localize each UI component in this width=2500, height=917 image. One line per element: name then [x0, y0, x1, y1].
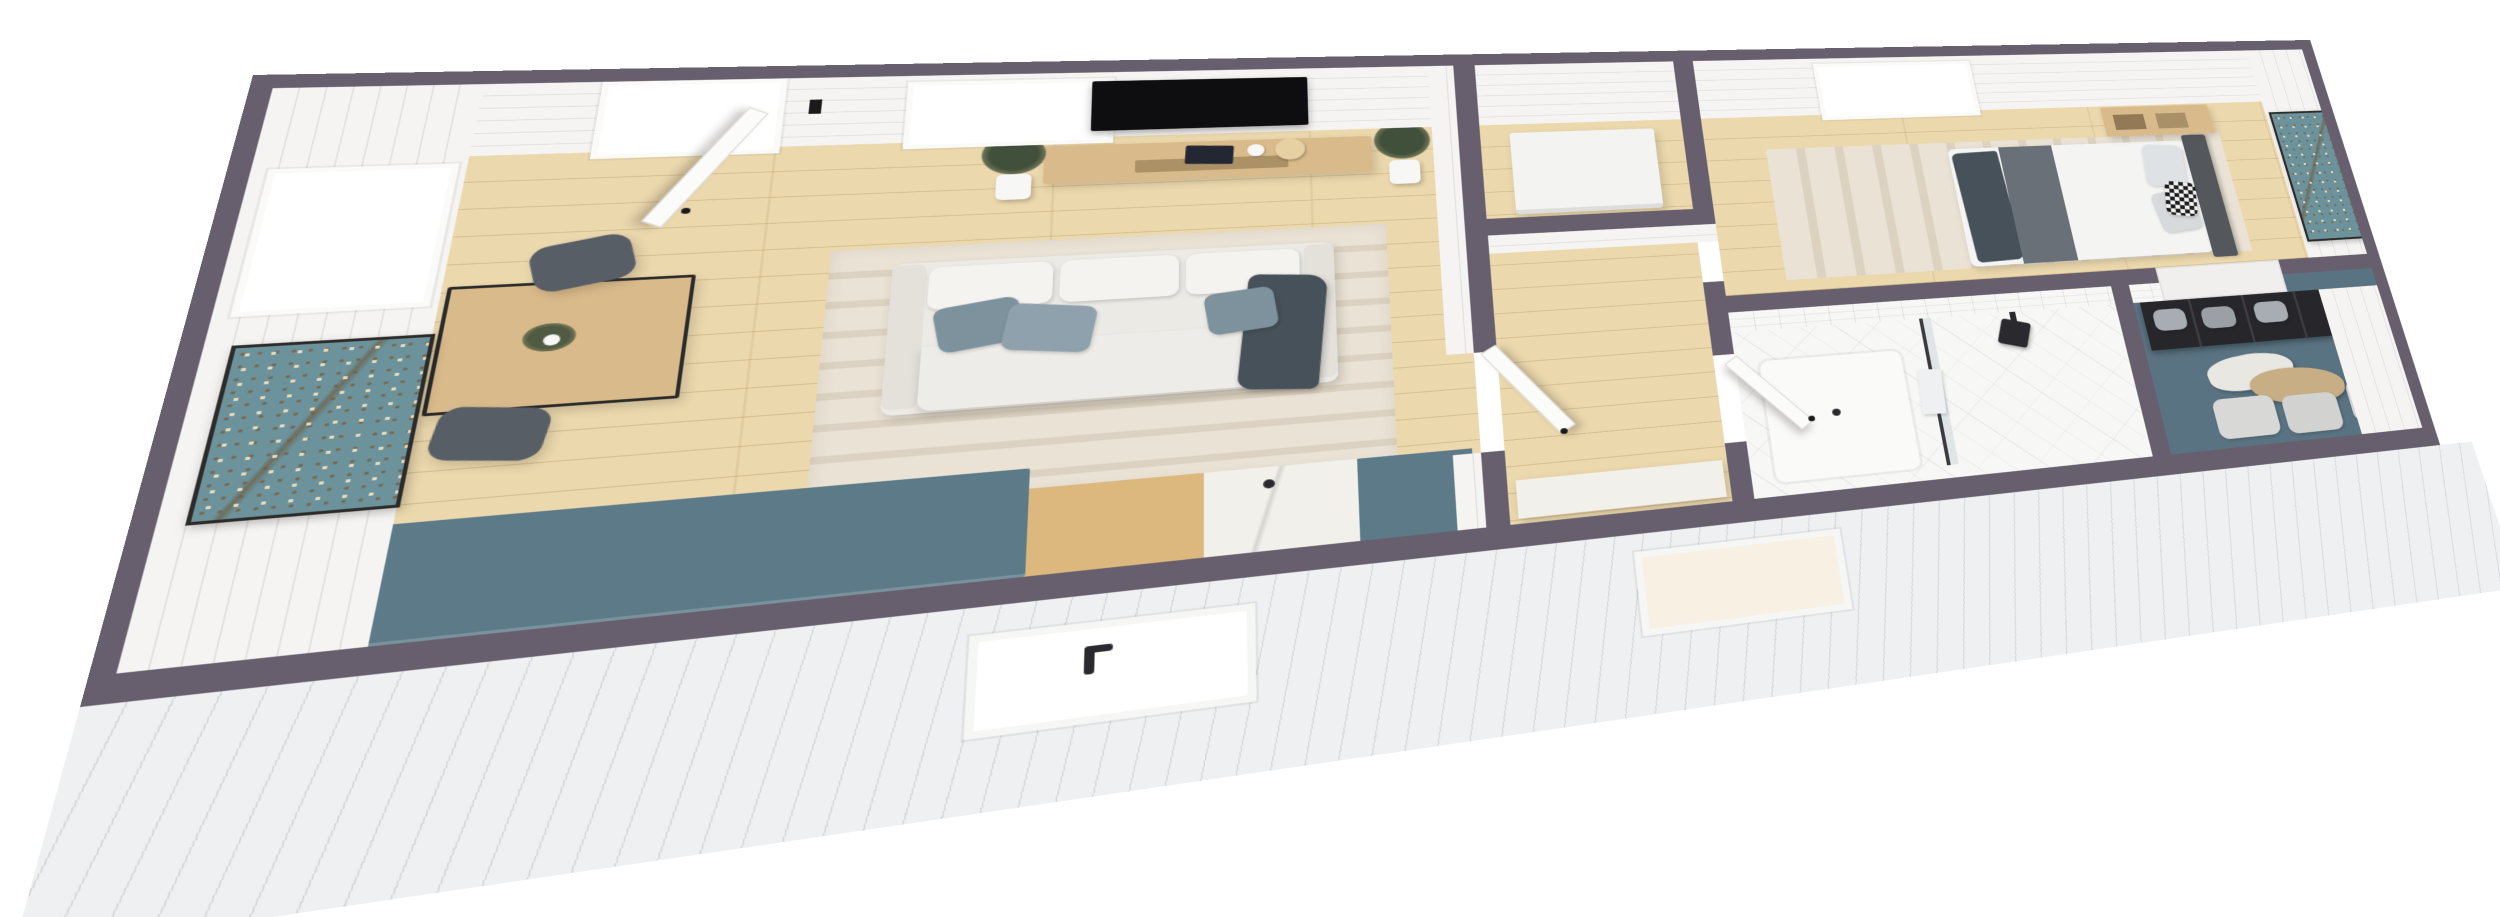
bedroom-back-window: [1813, 61, 1981, 121]
ottoman-3: [2211, 394, 2282, 440]
living-back-window: [903, 78, 1115, 149]
throw-pillow-blue-2: [999, 303, 1098, 353]
storage-bin-2: [2199, 306, 2238, 329]
isometric-floorplan: [12, 40, 2487, 917]
shower-tray: [1759, 350, 1921, 483]
potted-plant-right-pot: [1389, 159, 1421, 184]
sofa-seat-cushion-2: [1059, 255, 1179, 303]
living-left-window: [230, 163, 459, 317]
bedside-shelf-slot-1: [2112, 114, 2146, 130]
storage-bin-1: [2151, 308, 2188, 332]
bed-checkered-pillow: [2164, 181, 2198, 217]
washer-appliance: [1509, 128, 1663, 214]
desk-chair-lower: [423, 407, 556, 461]
potted-plant-left-pot: [995, 173, 1032, 200]
thermostat-icon: [808, 99, 822, 113]
floorplan-render-canvas: [0, 0, 2500, 917]
ottoman-4: [2280, 391, 2345, 434]
console-book-stack: [1185, 146, 1234, 164]
tv: [1091, 77, 1309, 131]
bedside-shelf-slot-2: [2155, 113, 2189, 129]
rain-shower-head-icon: [1998, 318, 2031, 348]
storage-bin-3: [2252, 300, 2290, 323]
bed-pillow-upper: [2141, 144, 2188, 186]
